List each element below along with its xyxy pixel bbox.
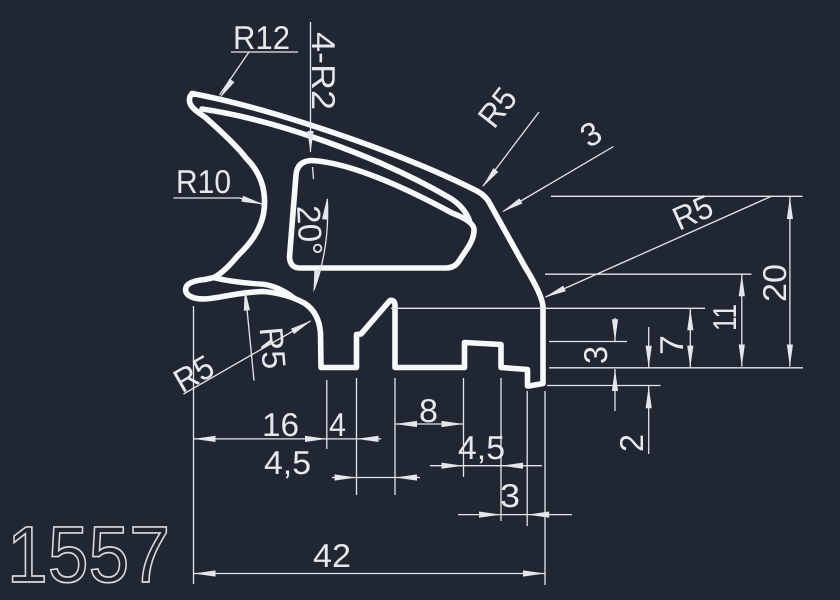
svg-text:4,5: 4,5: [458, 429, 505, 466]
svg-text:2: 2: [613, 434, 650, 452]
svg-text:3: 3: [500, 477, 520, 514]
svg-text:8: 8: [419, 392, 438, 429]
svg-text:R5: R5: [253, 325, 294, 370]
svg-text:4: 4: [329, 406, 346, 443]
svg-text:20°: 20°: [290, 204, 330, 256]
svg-text:4-R2: 4-R2: [305, 32, 342, 110]
svg-text:42: 42: [313, 537, 351, 574]
svg-text:R10: R10: [176, 163, 231, 200]
svg-text:R12: R12: [233, 19, 290, 56]
svg-text:1557: 1557: [7, 510, 170, 599]
svg-text:16: 16: [262, 406, 299, 443]
svg-text:7: 7: [653, 335, 690, 355]
svg-text:3: 3: [577, 346, 614, 364]
svg-text:11: 11: [706, 304, 743, 331]
svg-text:4,5: 4,5: [264, 444, 311, 481]
svg-text:20: 20: [756, 264, 793, 302]
